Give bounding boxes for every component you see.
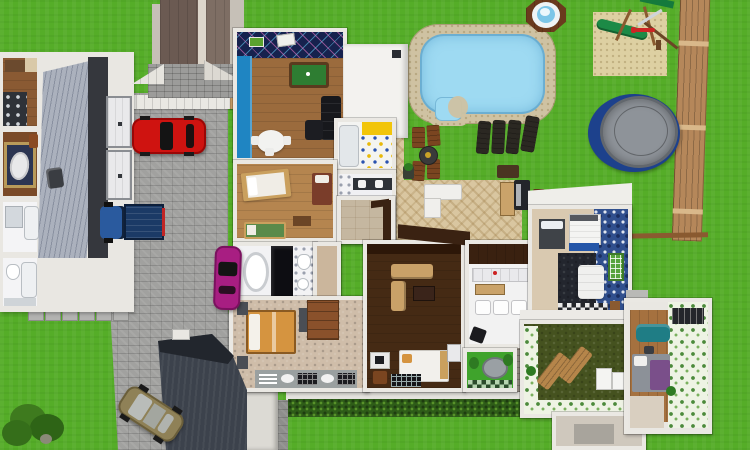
wing-white-sofa[interactable] — [578, 265, 604, 299]
tower-roof-right-slope — [206, 0, 230, 66]
left-kitchen-cabinet — [5, 60, 27, 72]
tree-canopy-3 — [2, 420, 32, 446]
floor-grate — [391, 374, 421, 387]
red-car-rear-window — [186, 124, 194, 148]
family-north-wall — [367, 244, 461, 254]
nightstand-2 — [237, 356, 248, 369]
beige-room-rug — [574, 424, 614, 444]
left-rug-room — [0, 129, 40, 199]
table-chair-3 — [265, 148, 274, 156]
left-kitchen-appliances — [3, 92, 27, 126]
tan-sofa-leg — [391, 281, 406, 311]
grill-front — [516, 184, 521, 206]
kids-bedroom[interactable] — [233, 160, 337, 242]
lounge-chair-2[interactable] — [491, 120, 506, 155]
kids-bed-large-pillow — [247, 177, 258, 196]
bathtub-2 — [21, 262, 37, 298]
roof-window — [46, 167, 65, 189]
teal-sofa[interactable] — [636, 324, 670, 342]
sunroom-plant — [526, 366, 536, 376]
fence-rail-top — [679, 41, 709, 47]
wing-bed-gray[interactable] — [539, 219, 565, 249]
patio-sofa-white-leg — [424, 198, 441, 218]
planter-plant — [404, 163, 413, 171]
blue-pickup-truck[interactable] — [100, 202, 166, 242]
left-armchair — [29, 134, 38, 148]
fr-beige-floor — [630, 396, 664, 428]
red-car-windshield — [160, 122, 173, 150]
skylight — [276, 33, 295, 47]
wkb-black-chair — [469, 326, 487, 344]
planter[interactable] — [403, 166, 414, 179]
kids-bed-large[interactable] — [241, 169, 292, 202]
truck-wheel-1 — [104, 202, 113, 207]
kids-bed-red[interactable] — [312, 173, 332, 205]
clawfoot-tub[interactable] — [243, 252, 269, 292]
magenta-car[interactable] — [213, 246, 242, 311]
family-room[interactable] — [363, 240, 465, 392]
left-bathroom-2 — [0, 255, 40, 309]
kids-bed-red-pillow — [315, 175, 329, 183]
fr-plant — [666, 386, 676, 396]
kitchen-tub — [339, 125, 359, 167]
wkb-seat-1 — [475, 300, 491, 315]
fr-shelf — [672, 308, 704, 324]
counter-plate-1 — [281, 374, 294, 383]
left-bathroom-1 — [0, 199, 40, 255]
counter-mat-1 — [259, 374, 277, 384]
wing-bed-footer — [569, 243, 599, 251]
billiards-ball — [306, 72, 310, 76]
wing-bedroom[interactable] — [528, 205, 632, 323]
dining-nook[interactable] — [337, 196, 395, 244]
swing-bar — [635, 28, 655, 32]
fr-ottoman — [644, 346, 654, 354]
garage-door-2-handle — [118, 174, 122, 178]
counter-grid-2 — [337, 373, 355, 385]
billiards-table[interactable] — [289, 62, 329, 88]
bath-tile-band — [4, 298, 36, 306]
table-chair-1 — [251, 136, 259, 145]
truck-wheel-2 — [104, 238, 113, 243]
green-sun-room[interactable] — [520, 320, 630, 418]
red-car-wheel-4 — [184, 152, 194, 156]
garage-door-2[interactable] — [106, 150, 132, 200]
master-bed-fold — [272, 312, 276, 352]
master-bed[interactable] — [246, 310, 296, 354]
hall — [313, 242, 341, 304]
porch-step — [278, 400, 288, 450]
wing-bed-white[interactable] — [569, 214, 601, 245]
truck-cab — [100, 206, 126, 239]
wing-bed-white-headboard — [570, 215, 598, 221]
patio-chair-1[interactable] — [412, 127, 425, 148]
nook-plant-2 — [503, 354, 513, 366]
nook-plant-1 — [469, 357, 479, 369]
kitchen-room[interactable] — [334, 118, 396, 172]
floorplan-3d-viewport[interactable] — [0, 0, 750, 450]
kids-dresser — [293, 216, 311, 226]
red-car[interactable] — [132, 118, 206, 154]
red-car-wheel-3 — [184, 116, 194, 120]
wkb-seat-2 — [493, 300, 509, 315]
truck-bed — [124, 204, 164, 240]
porch-column — [246, 392, 278, 450]
shower-stall — [5, 206, 23, 228]
fence-rail-bot — [673, 208, 703, 214]
hot-tub-swirl — [540, 8, 550, 16]
toilet — [6, 264, 20, 280]
monitor — [375, 356, 384, 364]
master-bed-pillows — [249, 314, 260, 350]
black-wall-panel — [271, 246, 293, 300]
game-room-blue-wall — [237, 56, 252, 158]
outdoor-cabinet[interactable] — [500, 182, 515, 216]
left-kitchen — [0, 55, 40, 129]
hedge — [288, 399, 527, 417]
magenta-car-window — [218, 262, 237, 277]
black-sofa-chaise — [305, 120, 323, 140]
roof-vent — [392, 50, 401, 58]
left-kitchen-counter — [25, 58, 37, 72]
wkb-counter — [472, 268, 530, 282]
green-nook[interactable] — [463, 348, 517, 392]
purple-bed-blanket — [650, 360, 670, 390]
computer-desk[interactable] — [370, 352, 390, 369]
patio-chair-2[interactable] — [426, 125, 440, 147]
sink-2 — [375, 180, 383, 188]
wkb-red-knob — [493, 271, 497, 275]
coffee-table — [413, 286, 435, 301]
counter-plate-2 — [321, 374, 334, 383]
master-shelf[interactable] — [307, 300, 339, 340]
master-bedroom[interactable] — [229, 296, 369, 392]
garage-door-1[interactable] — [106, 96, 132, 148]
tree-trunk — [40, 434, 52, 444]
nook-tile-strip — [468, 380, 512, 388]
bath2-toilet — [297, 254, 311, 270]
mini-fridge — [447, 344, 461, 362]
desk-chair[interactable] — [372, 370, 388, 385]
outdoor-bench[interactable] — [497, 165, 519, 178]
bath2-sink — [297, 278, 309, 290]
magenta-car-rear-window — [218, 286, 235, 295]
garage-rooftop-box — [172, 329, 190, 340]
far-right-bedroom[interactable] — [624, 298, 712, 434]
tan-sofa[interactable] — [391, 264, 433, 279]
double-vanity — [353, 178, 392, 190]
kids-bed-green-pillow — [247, 225, 256, 235]
garage-door-1-handle — [118, 122, 122, 126]
fence-rail-mid — [676, 124, 706, 130]
kitchen-daisy-floor — [360, 135, 392, 168]
exit-sign — [249, 37, 264, 47]
kids-bed-green[interactable] — [244, 222, 286, 239]
master-counter — [255, 370, 357, 388]
bathtub-1 — [24, 206, 39, 240]
guest-bed-pillow — [402, 354, 412, 363]
table-chair-2 — [283, 136, 291, 145]
truck-taillight — [162, 208, 165, 236]
swing-seat — [631, 27, 636, 33]
game-room[interactable] — [233, 28, 347, 162]
purple-bed[interactable] — [632, 354, 670, 392]
wkb-dark-wall — [469, 244, 531, 264]
pool-steps — [448, 96, 468, 118]
wkb-dresser — [475, 284, 505, 295]
sunroom-cabinet-1 — [596, 368, 612, 390]
fire-pit-center — [425, 152, 431, 158]
red-car-wheel-1 — [140, 116, 150, 120]
fire-pit[interactable] — [419, 146, 438, 165]
red-car-wheel-2 — [140, 152, 150, 156]
tower-roof-edge-left — [152, 4, 160, 66]
green-window-frame — [608, 253, 624, 281]
trampoline-inner-ring — [614, 106, 668, 156]
sink-1 — [358, 180, 366, 188]
purple-bed-pillow — [634, 356, 647, 366]
black-bathroom[interactable] — [233, 242, 317, 304]
kitchen-yellow-wall — [362, 122, 392, 135]
wing-bed-gray-pillow — [541, 221, 563, 229]
tower-roof-ridge — [198, 0, 206, 66]
counter-grid-1 — [297, 373, 317, 385]
tower-roof-left-slope — [160, 0, 198, 66]
play-post — [656, 40, 661, 50]
